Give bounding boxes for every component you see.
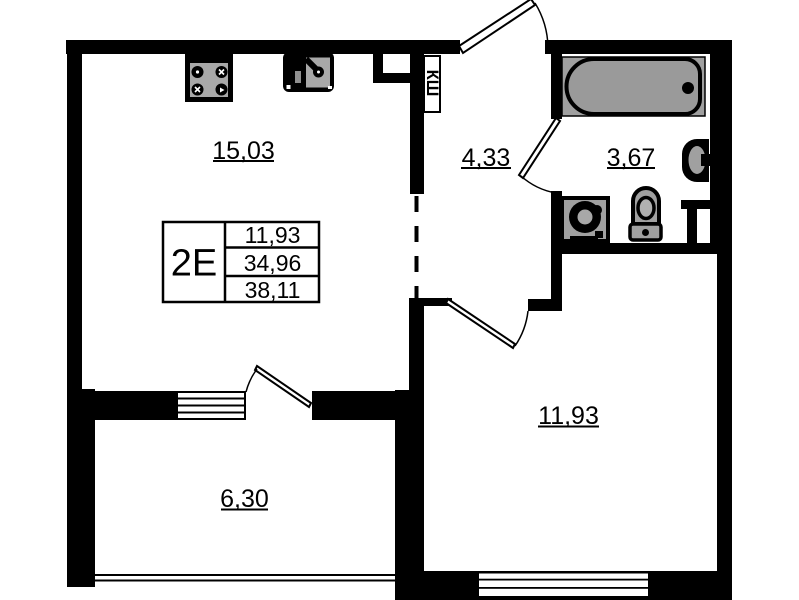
svg-text:34,96: 34,96: [244, 250, 302, 276]
svg-text:КШ: КШ: [423, 70, 441, 97]
svg-text:11,93: 11,93: [245, 222, 301, 248]
svg-text:38,11: 38,11: [245, 277, 301, 303]
svg-text:2Е: 2Е: [171, 243, 217, 285]
